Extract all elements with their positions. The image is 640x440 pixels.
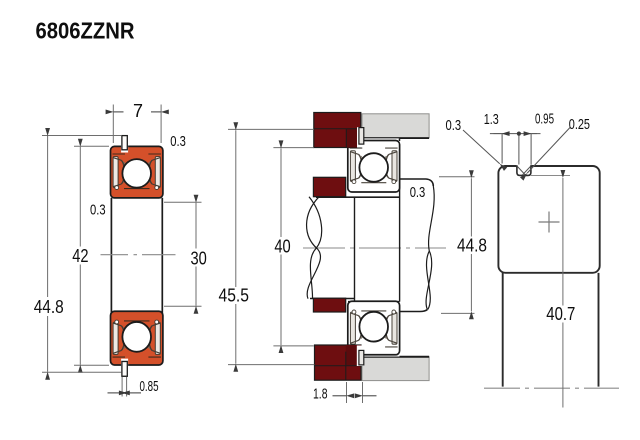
svg-text:0.3: 0.3 — [410, 184, 426, 201]
svg-text:1.8: 1.8 — [313, 386, 328, 403]
svg-text:40.7: 40.7 — [546, 304, 575, 324]
svg-text:0.3: 0.3 — [446, 117, 462, 134]
svg-text:44.8: 44.8 — [34, 297, 64, 317]
svg-text:0.85: 0.85 — [140, 378, 159, 395]
svg-text:45.5: 45.5 — [219, 286, 250, 306]
svg-text:7: 7 — [133, 101, 143, 121]
svg-text:6806ZZNR: 6806ZZNR — [36, 17, 135, 43]
svg-text:1.3: 1.3 — [484, 111, 499, 128]
svg-text:44.8: 44.8 — [457, 235, 487, 255]
svg-text:0.3: 0.3 — [90, 202, 106, 219]
svg-text:40: 40 — [274, 236, 290, 256]
svg-text:42: 42 — [72, 246, 88, 266]
svg-text:0.25: 0.25 — [569, 116, 590, 133]
svg-text:30: 30 — [191, 248, 207, 268]
svg-text:0.95: 0.95 — [535, 110, 554, 127]
svg-text:0.3: 0.3 — [170, 133, 186, 150]
